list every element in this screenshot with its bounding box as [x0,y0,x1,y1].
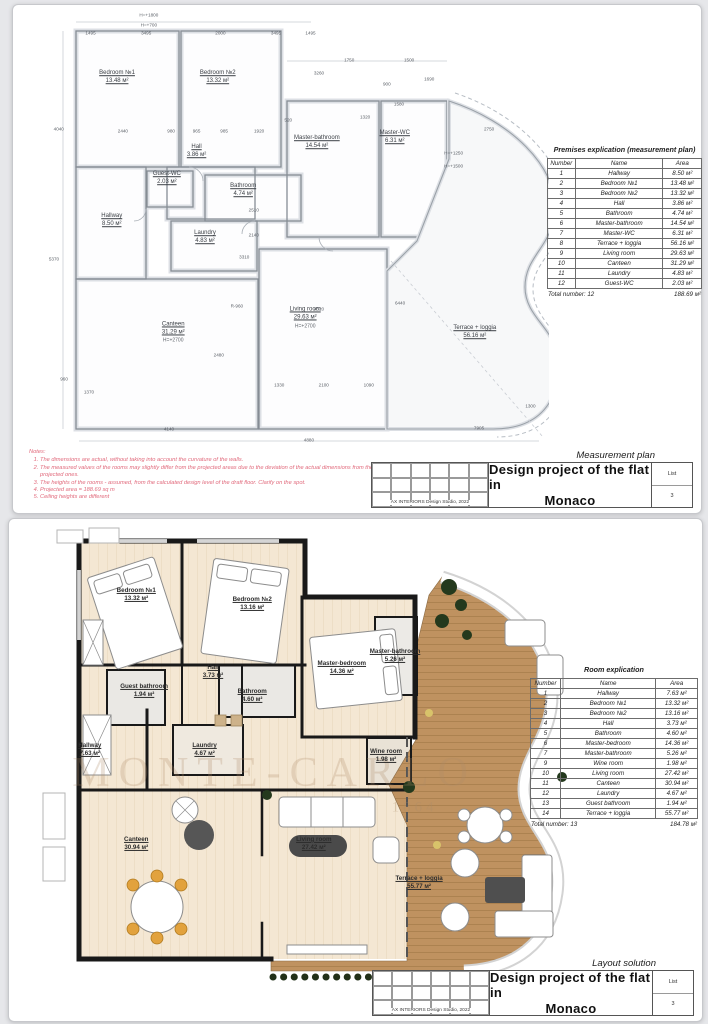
notes: Notes: The dimensions are actual, withou… [29,449,385,502]
sheet-measurement-plan: Bedroom №113.48 м²Bedroom №213.32 м²Hall… [12,4,702,514]
studio-credit: AX INTERIORS Design Studio, 2022 [374,500,486,505]
layout-plan-drawing: MONTE-CARLO 1864 Bedroom №113.32 м²Bedro… [17,525,577,985]
table-header-row: Number Name Area [548,159,702,169]
table-row: 5Bathroom4.74 м² [548,209,702,219]
total-area: 184.78 м² [670,821,697,828]
explication-table: Number Name Area 1Hallway7.63 м²2Bedroom… [530,678,698,819]
note-item: Ceiling heights are different [40,494,385,501]
col-name: Name [575,159,663,169]
sheet-layout-solution: MONTE-CARLO 1864 Bedroom №113.32 м²Bedro… [8,518,703,1022]
project-title: Design project of the flat in Monaco [489,463,651,507]
col-number: Number [531,679,561,689]
table-row: 9Living room29.63 м² [548,249,702,259]
table-title: Premises explication (measurement plan) [547,145,702,154]
total-area: 188.69 м² [674,291,701,298]
explication-table: Number Name Area 1Hallway8.50 м²2Bedroom… [547,158,702,289]
premises-explication-table: Premises explication (measurement plan) … [547,145,702,298]
table-row: 14Terrace + loggia55.77 м² [531,809,698,819]
table-row: 6Master-bedroom14.36 м² [531,739,698,749]
table-row: 10Canteen31.29 м² [548,259,702,269]
table-row: 13Guest bathroom1.94 м² [531,799,698,809]
layout-plan-svg [17,525,577,985]
list-label: List [653,971,693,994]
project-title-line1: Design project of the flat in [489,462,651,493]
table-row: 1Hallway8.50 м² [548,169,702,179]
table-row: 4Hall3.86 м² [548,199,702,209]
table-row: 12Laundry4.67 м² [531,789,698,799]
col-area: Area [663,159,702,169]
total-label: Total number: 13 [531,821,577,828]
project-title: Design project of the flat in Monaco [490,971,652,1015]
table-row: 7Master-WC6.31 м² [548,229,702,239]
table-row: 3Bedroom №213.32 м² [548,189,702,199]
col-name: Name [561,679,656,689]
list-number: 3 [652,486,692,508]
project-title-line2: Monaco [545,493,596,509]
col-area: Area [656,679,698,689]
total-label: Total number: 12 [548,291,594,298]
measurement-plan-svg [19,9,549,455]
note-item: Projected area = 188.69 sq m [40,487,385,494]
notes-title: Notes: [29,449,385,456]
list-number: 3 [653,994,693,1016]
table-row: 9Wine room1.98 м² [531,759,698,769]
title-block: Layout solution AX INTERIORS Design Stud… [372,958,694,1016]
room-explication-table: Room explication Number Name Area 1Hallw… [530,665,698,828]
studio-credit: AX INTERIORS Design Studio, 2022 [375,1008,487,1013]
table-title: Room explication [530,665,698,674]
table-row: 2Bedroom №113.32 м² [531,699,698,709]
table-header-row: Number Name Area [531,679,698,689]
table-row: 3Bedroom №213.16 м² [531,709,698,719]
table-total-row: Total number: 12 188.69 м² [547,291,702,298]
note-item: The heights of the rooms - assumed, from… [40,480,385,487]
list-box: List 3 [652,971,693,1015]
table-row: 8Terrace + loggia56.16 м² [548,239,702,249]
table-row: 1Hallway7.63 м² [531,689,698,699]
project-title-line1: Design project of the flat in [490,970,652,1001]
table-row: 4Hall3.73 м² [531,719,698,729]
table-row: 6Master-bathroom14.54 м² [548,219,702,229]
table-row: 10Living room27.42 м² [531,769,698,779]
table-total-row: Total number: 13 184.78 м² [530,821,698,828]
title-block: Measurement plan AX INTERIORS Design Stu… [371,450,693,508]
col-number: Number [548,159,576,169]
table-row: 12Guest-WC2.03 м² [548,279,702,289]
table-row: 5Bathroom4.60 м² [531,729,698,739]
project-title-line2: Monaco [546,1001,597,1017]
list-box: List 3 [651,463,692,507]
measurement-plan-drawing: Bedroom №113.48 м²Bedroom №213.32 м²Hall… [19,9,549,455]
list-label: List [652,463,692,486]
table-row: 2Bedroom №113.48 м² [548,179,702,189]
note-item: The dimensions are actual, without takin… [40,457,385,464]
table-row: 11Canteen30.94 м² [531,779,698,789]
table-row: 7Master-bathroom5.26 м² [531,749,698,759]
table-row: 11Laundry4.83 м² [548,269,702,279]
note-item: The measured values of the rooms may sli… [40,465,385,480]
